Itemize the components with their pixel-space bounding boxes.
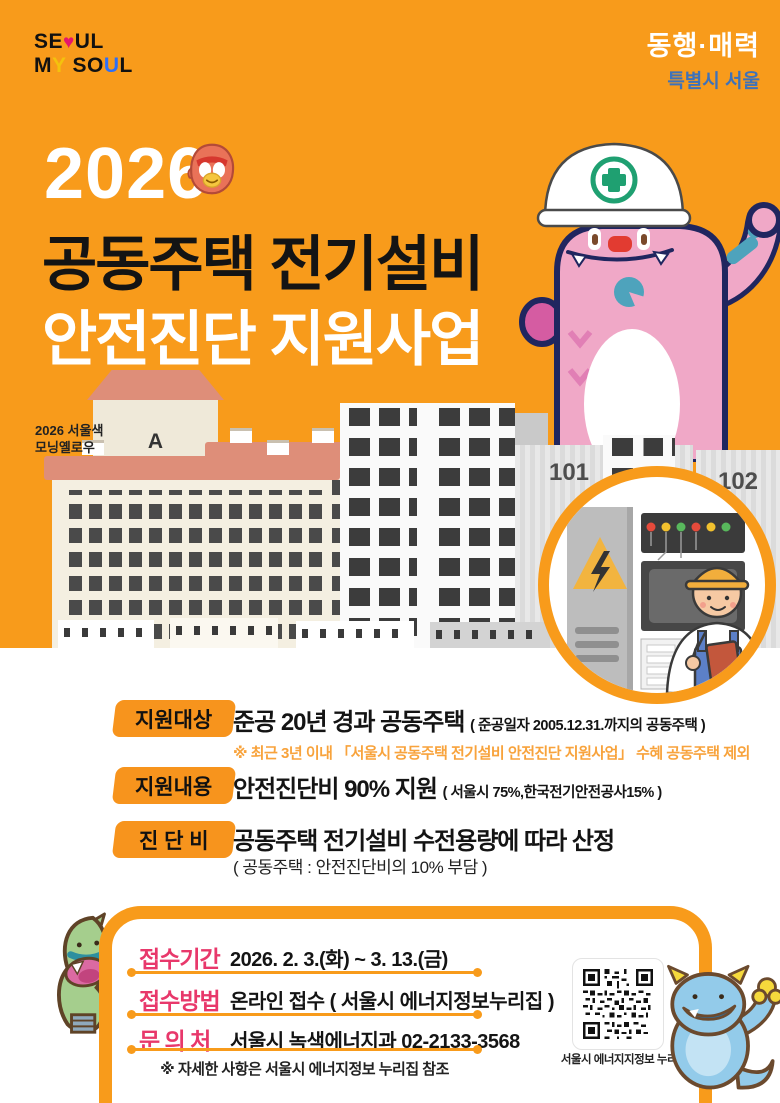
support-detail-badge: 지원내용 xyxy=(112,767,237,804)
electrician-inspection-illustration xyxy=(538,466,776,704)
building-highrise xyxy=(340,403,515,648)
blue-mascot-illustration xyxy=(642,952,780,1100)
street-block xyxy=(430,622,550,648)
support-target-paren: ( 준공일자 2005.12.31.까지의 공동주택 ) xyxy=(470,718,705,734)
apply-box-note: ※ 자세한 사항은 서울시 에너지정보 누리집 참조 xyxy=(131,1058,478,1079)
poster: SE♥UL MY SOUL 동행·매력 특별시 서울 2026 공동주택 전기설… xyxy=(0,0,780,1103)
slogan-line1: 동행·매력 xyxy=(647,24,760,63)
divider xyxy=(131,971,478,974)
support-target-note: ※ 최근 3년 이내 「서울시 공동주택 전기설비 안전진단 지원사업」 수혜 … xyxy=(233,742,750,763)
support-target-text: 준공 20년 경과 공동주택 ( 준공일자 2005.12.31.까지의 공동주… xyxy=(233,702,705,737)
support-detail-paren: ( 서울시 75%,한국전기안전공사15% ) xyxy=(443,785,662,801)
poster-title-line2: 안전진단 지원사업 xyxy=(42,291,482,378)
support-detail-text: 안전진단비 90% 지원 ( 서울시 75%,한국전기안전공사15% ) xyxy=(233,769,662,804)
apply-method-label: 접수방법 xyxy=(139,982,220,1016)
poster-title-year: 2026 xyxy=(44,133,208,215)
divider xyxy=(131,1048,478,1051)
seoul-color-note: 2026 서울색 모닝옐로우 xyxy=(35,422,103,456)
seoul-my-soul-logo: SE♥UL MY SOUL xyxy=(34,30,133,77)
diagnosis-fee-text: 공동주택 전기설비 수전용량에 따라 산정 xyxy=(233,821,614,856)
city-brand-slogan: 동행·매력 특별시 서울 xyxy=(647,24,760,93)
heart-icon: ♥ xyxy=(63,32,75,53)
support-target-badge: 지원대상 xyxy=(112,700,237,737)
apply-period-value: 2026. 2. 3.(화) ~ 3. 13.(금) xyxy=(230,943,448,972)
diagnosis-fee-badge: 진 단 비 xyxy=(112,821,237,858)
divider xyxy=(131,1013,478,1016)
building-a-letter: A xyxy=(93,430,218,454)
logo-text: SE xyxy=(34,30,63,53)
street-house xyxy=(170,618,278,648)
bird-mascot-icon xyxy=(186,141,238,197)
apply-period-label: 접수기간 xyxy=(139,940,220,974)
poster-title-line1: 공동주택 전기설비 xyxy=(42,216,482,303)
slogan-line2: 특별시 서울 xyxy=(647,66,760,93)
diagnosis-fee-paren: ( 공동주택 : 안전진단비의 10% 부담 ) xyxy=(233,853,487,878)
street-house xyxy=(296,621,414,648)
street-house xyxy=(58,620,154,648)
apply-method-value: 온라인 접수 ( 서울시 에너지정보누리집 ) xyxy=(230,985,554,1014)
